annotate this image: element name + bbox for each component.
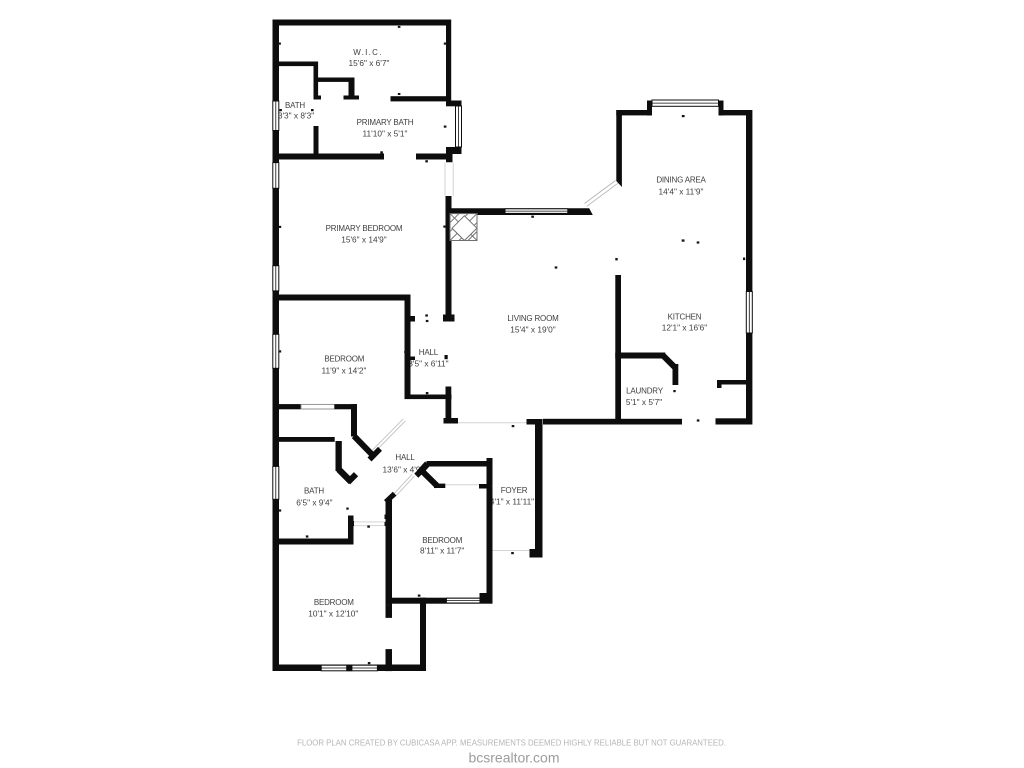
svg-text:FLOOR PLAN CREATED BY CUBICASA: FLOOR PLAN CREATED BY CUBICASA APP. MEAS… <box>297 738 726 747</box>
svg-text:HALL: HALL <box>395 453 415 462</box>
svg-text:15'6" x 14'9": 15'6" x 14'9" <box>341 235 387 245</box>
svg-text:FOYER: FOYER <box>501 486 528 495</box>
svg-text:11'9" x 14'2": 11'9" x 14'2" <box>322 366 367 376</box>
svg-text:5'1" x 5'7": 5'1" x 5'7" <box>626 397 662 407</box>
svg-text:BEDROOM: BEDROOM <box>324 355 364 364</box>
svg-text:12'1" x 16'6": 12'1" x 16'6" <box>662 322 708 332</box>
svg-text:15'6" x 6'7": 15'6" x 6'7" <box>349 58 390 68</box>
svg-text:10'1" x 12'10": 10'1" x 12'10" <box>308 608 358 618</box>
svg-text:BATH: BATH <box>285 101 305 110</box>
svg-text:LIVING ROOM: LIVING ROOM <box>507 314 559 323</box>
svg-text:3'3" x 8'3": 3'3" x 8'3" <box>278 111 314 121</box>
svg-text:PRIMARY BEDROOM: PRIMARY BEDROOM <box>326 224 403 233</box>
svg-text:bcsrealtor.com: bcsrealtor.com <box>468 750 559 766</box>
svg-text:14'4" x 11'9": 14'4" x 11'9" <box>659 186 704 196</box>
svg-text:BEDROOM: BEDROOM <box>314 598 354 607</box>
svg-text:LAUNDRY: LAUNDRY <box>626 387 664 396</box>
svg-text:BEDROOM: BEDROOM <box>422 536 462 545</box>
svg-text:15'4" x 19'0": 15'4" x 19'0" <box>510 324 556 334</box>
svg-text:8'11" x 11'7": 8'11" x 11'7" <box>420 546 464 556</box>
svg-text:PRIMARY BATH: PRIMARY BATH <box>357 118 414 127</box>
svg-text:6'5" x 9'4": 6'5" x 9'4" <box>296 497 332 507</box>
svg-text:DINING AREA: DINING AREA <box>656 176 706 185</box>
svg-text:W.I.C.: W.I.C. <box>353 48 383 57</box>
svg-text:KITCHEN: KITCHEN <box>668 313 702 322</box>
svg-text:11'10" x 5'1": 11'10" x 5'1" <box>363 128 408 138</box>
svg-text:4'1" x 11'11": 4'1" x 11'11" <box>490 497 534 507</box>
svg-text:HALL: HALL <box>419 348 439 357</box>
svg-text:BATH: BATH <box>304 487 324 496</box>
